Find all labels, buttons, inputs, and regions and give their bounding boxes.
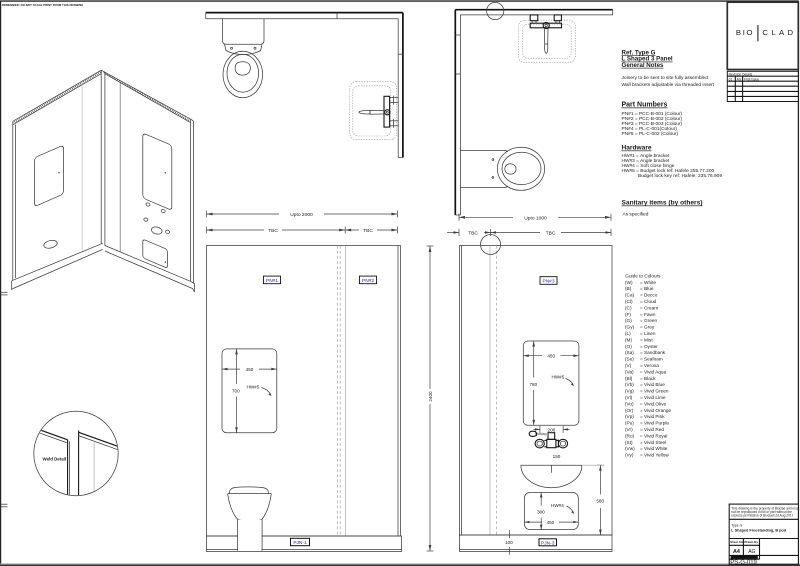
svg-text:Hardware: Hardware xyxy=(622,145,652,152)
svg-text:Guide to Colours :: Guide to Colours : xyxy=(625,274,663,279)
svg-text:(Ca)= Decco: (Ca)= Decco xyxy=(625,293,658,298)
svg-text:Budget lock key ref: Hafele: 2: Budget lock key ref: Hafele: 235.76.909 xyxy=(638,173,722,179)
svg-text:(Cl)= Cloud: (Cl)= Cloud xyxy=(625,299,657,304)
svg-text:780: 780 xyxy=(529,382,537,387)
svg-text:(W)= White: (W)= White xyxy=(625,280,656,285)
svg-text:TBC: TBC xyxy=(363,228,373,234)
svg-text:450: 450 xyxy=(246,367,254,372)
svg-text:First Issue: First Issue xyxy=(744,77,759,81)
svg-text:As specified: As specified xyxy=(623,212,649,218)
svg-text:PJN-3: PJN-3 xyxy=(541,540,555,546)
svg-text:TBC: TBC xyxy=(546,231,556,237)
svg-text:01: 01 xyxy=(729,77,733,81)
svg-text:Weld Detail: Weld Detail xyxy=(43,456,67,461)
svg-text:AG: AG xyxy=(737,77,742,81)
svg-text:(Vo)= Vivid Olive: (Vo)= Vivid Olive xyxy=(625,401,666,406)
svg-text:Sanitary items (by others): Sanitary items (by others) xyxy=(622,200,703,207)
svg-text:L Shaped Freestanding, B pod: L Shaped Freestanding, B pod xyxy=(731,529,786,533)
svg-text:300: 300 xyxy=(537,510,545,515)
svg-text:(C)= Cream: (C)= Cream xyxy=(625,305,658,310)
svg-text:PN#3: PN#3 xyxy=(543,279,555,285)
svg-text:2400: 2400 xyxy=(428,391,433,402)
svg-text:TBC: TBC xyxy=(268,228,278,234)
svg-text:Upto 1000: Upto 1000 xyxy=(524,215,547,221)
svg-text:PN#2: PN#2 xyxy=(362,278,374,284)
svg-text:(Vw)= Vivid White: (Vw)= Vivid White xyxy=(625,446,668,451)
svg-text:HW#4: HW#4 xyxy=(551,503,564,508)
svg-text:(M)= Mist: (M)= Mist xyxy=(625,337,653,342)
svg-text:(F)= Fawn: (F)= Fawn xyxy=(625,312,656,317)
svg-text:Joinery to be sent to site ful: Joinery to be sent to site fully assembl… xyxy=(622,75,709,81)
svg-text:A4: A4 xyxy=(733,549,740,555)
svg-text:(Se)= Seafoam: (Se)= Seafoam xyxy=(625,357,663,362)
svg-text:HW#5: HW#5 xyxy=(247,385,260,390)
svg-text:(B)= Blue: (B)= Blue xyxy=(625,286,654,291)
svg-text:Drawn By: Drawn By xyxy=(745,540,759,544)
svg-text:(Ro)= Vivid Royal: (Ro)= Vivid Royal xyxy=(625,433,667,438)
svg-text:TBC: TBC xyxy=(468,231,478,237)
svg-text:(Pu)= Vivid Purple: (Pu)= Vivid Purple xyxy=(625,421,669,426)
svg-text:(Sa)= Sandbank: (Sa)= Sandbank xyxy=(625,350,666,355)
svg-text:HW#5: HW#5 xyxy=(552,375,565,380)
svg-text:Type G: Type G xyxy=(731,524,742,528)
svg-text:(Vr)= Vivid Red: (Vr)= Vivid Red xyxy=(625,427,664,432)
svg-text:(Vp)= Vivid Pink: (Vp)= Vivid Pink xyxy=(625,414,665,419)
svg-text:(Vb)= Vivid Blue: (Vb)= Vivid Blue xyxy=(625,382,665,387)
svg-text:700: 700 xyxy=(232,388,240,393)
svg-text:PJN-1: PJN-1 xyxy=(293,540,307,546)
svg-text:(Gy)= Grey: (Gy)= Grey xyxy=(625,325,655,330)
svg-text:(Or)= Vivid Orange: (Or)= Vivid Orange xyxy=(625,408,671,413)
svg-text:REMEMBER: DO NOT SCALE PRINT F: REMEMBER: DO NOT SCALE PRINT FROM THIS D… xyxy=(2,3,84,7)
svg-text:BIO: BIO xyxy=(736,28,754,37)
svg-text:(Vy)= Vivid Yellow: (Vy)= Vivid Yellow xyxy=(625,453,669,458)
svg-text:(Va)= Vivid Aqua: (Va)= Vivid Aqua xyxy=(625,369,666,374)
svg-text:200: 200 xyxy=(548,427,556,432)
svg-text:CLAD: CLAD xyxy=(762,28,796,37)
svg-text:Part Numbers: Part Numbers xyxy=(622,102,668,109)
svg-text:Wall brackets adjustable via t: Wall brackets adjustable via threaded in… xyxy=(622,82,715,88)
svg-text:PN#5 = PL-C-002 (Colour): PN#5 = PL-C-002 (Colour) xyxy=(622,131,679,137)
svg-text:Sheet Size: Sheet Size xyxy=(730,540,745,544)
svg-text:(Vl)= Vivid Lime: (Vl)= Vivid Lime xyxy=(625,395,666,400)
svg-text:450: 450 xyxy=(547,520,555,525)
svg-text:(Bl)= Black: (Bl)= Black xyxy=(625,376,656,381)
svg-text:100: 100 xyxy=(505,540,513,545)
svg-text:(St)= Vivid Steel: (St)= Vivid Steel xyxy=(625,440,666,445)
svg-text:PN#1: PN#1 xyxy=(266,278,278,284)
svg-text:(V)= Verona: (V)= Verona xyxy=(625,363,659,368)
svg-text:150: 150 xyxy=(553,454,561,459)
svg-text:Revision Details: Revision Details xyxy=(729,72,753,76)
svg-text:General Notes: General Notes xyxy=(622,62,665,69)
svg-text:AG: AG xyxy=(748,549,755,555)
svg-text:express permission of Bioclad: express permission of Bioclad Ltd Aug 20… xyxy=(731,514,793,518)
svg-text:Upto 2000: Upto 2000 xyxy=(290,212,313,218)
svg-text:PS-G-019: PS-G-019 xyxy=(730,560,757,566)
svg-text:(Vg)= Vivid Green: (Vg)= Vivid Green xyxy=(625,389,669,394)
svg-text:580: 580 xyxy=(596,499,604,504)
svg-text:450: 450 xyxy=(547,354,555,359)
svg-text:(O)= Oyster: (O)= Oyster xyxy=(625,344,658,349)
svg-text:(L)= Linen: (L)= Linen xyxy=(625,331,656,336)
svg-text:(G)= Green: (G)= Green xyxy=(625,318,657,323)
